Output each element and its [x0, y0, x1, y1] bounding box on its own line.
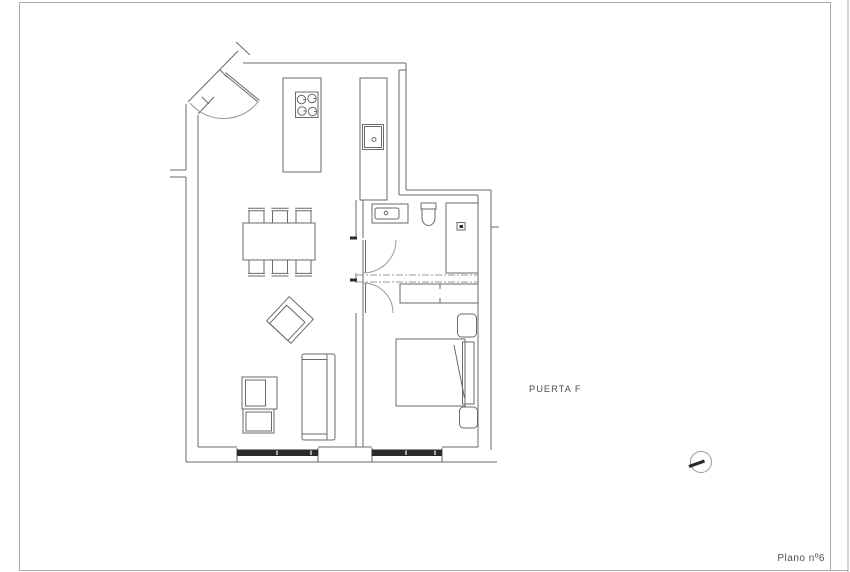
nightstand-top: [458, 314, 477, 337]
dining-area: [243, 208, 315, 276]
shower-tray: [446, 203, 478, 273]
tv-unit-upper: [242, 377, 277, 409]
sink-basin: [375, 208, 399, 219]
tv-unit: [242, 377, 277, 433]
wardrobe: [400, 284, 478, 303]
orientation-needle-icon: [689, 461, 705, 467]
bedroom-door: [363, 283, 393, 313]
floor-plan-canvas: PUERTA F Plano nº6: [0, 0, 850, 572]
wardrobe-outline: [400, 284, 478, 303]
toilet: [421, 203, 436, 226]
bathroom-sink-cabinet: [372, 204, 408, 223]
sheet-frame: [20, 0, 849, 572]
sink-outer: [363, 125, 384, 150]
kitchen-sink: [363, 125, 384, 150]
nightstand-bottom: [460, 407, 478, 428]
tv-unit-lower-inner: [246, 412, 272, 431]
sink-drain-icon: [372, 138, 376, 142]
shower: [446, 203, 478, 273]
door-jamb-block-bottom: [350, 279, 357, 282]
entrance-door-swing-arc: [190, 102, 258, 119]
tv-unit-upper-inner: [246, 380, 266, 406]
tv-unit-lower: [243, 409, 274, 433]
living-area: [242, 297, 335, 440]
bathroom-door-swing-arc: [363, 240, 396, 273]
dining-chairs: [248, 208, 312, 276]
toilet-bowl: [422, 209, 435, 226]
border-rectangle: [20, 3, 831, 571]
toilet-tank: [421, 203, 436, 209]
entrance-door: [190, 73, 260, 119]
sink-inner: [365, 127, 382, 148]
armchair-outline: [267, 297, 314, 344]
bed: [396, 314, 478, 428]
dining-table: [243, 223, 315, 260]
bedroom: [363, 283, 478, 428]
faucet-icon: [384, 211, 388, 215]
bathroom: [363, 203, 478, 273]
orientation-marker: [689, 452, 712, 473]
bedroom-door-leaf: [363, 283, 366, 313]
burner-icon: [297, 94, 316, 115]
bedroom-door-swing-arc: [363, 283, 393, 313]
armchair-seat: [270, 305, 305, 340]
plan-number-label: Plano nº6: [777, 553, 825, 564]
armchair: [267, 297, 314, 344]
sofa: [302, 354, 335, 440]
bathroom-door-leaf: [363, 240, 366, 273]
drawing-sheet: PUERTA F Plano nº6: [0, 0, 850, 572]
overhead-dashed-lines: [357, 275, 478, 282]
sofa-outline: [302, 354, 335, 440]
bathroom-door: [363, 240, 396, 273]
sofa-cushion-lines: [302, 354, 327, 440]
windows: [237, 450, 442, 457]
door-jamb-block-top: [350, 237, 357, 240]
shower-drain-center: [460, 225, 464, 228]
bedroom-window: [372, 450, 443, 457]
cooktop: [296, 92, 319, 118]
door-label: PUERTA F: [529, 384, 582, 394]
sink-cabinet-outline: [372, 204, 408, 223]
entrance-door-leaf: [224, 73, 260, 103]
kitchen: [283, 78, 387, 200]
page-right-edge: [831, 0, 849, 572]
